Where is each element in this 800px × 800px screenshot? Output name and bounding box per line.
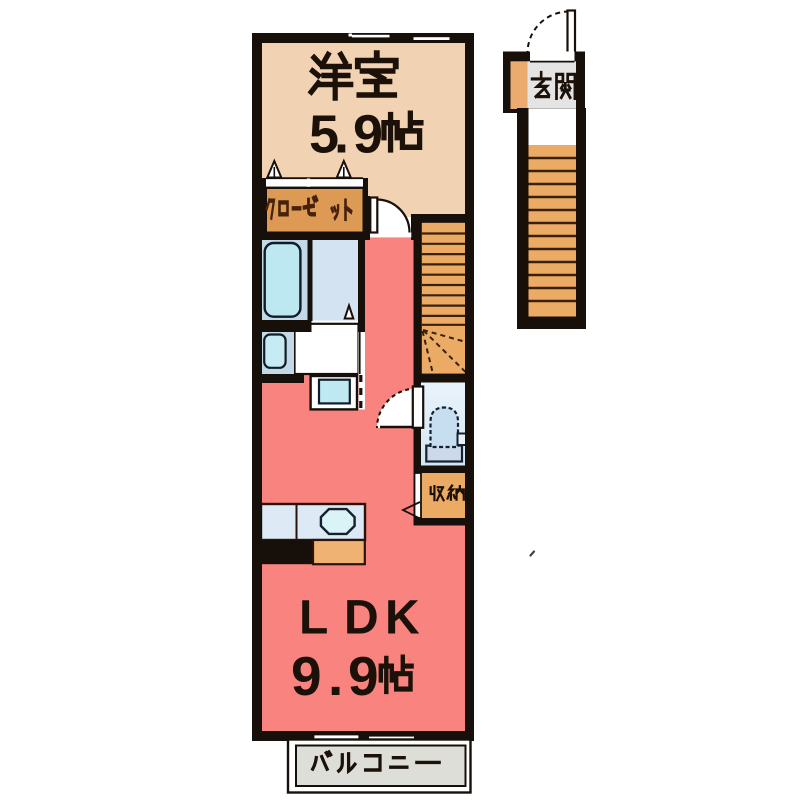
svg-text:K: K bbox=[385, 592, 420, 645]
svg-text:9: 9 bbox=[291, 645, 322, 707]
svg-text:.: . bbox=[328, 645, 343, 707]
svg-text:9: 9 bbox=[348, 645, 379, 707]
svg-text:.: . bbox=[334, 105, 349, 165]
svg-text:D: D bbox=[344, 592, 379, 645]
svg-text:L: L bbox=[299, 592, 328, 645]
svg-text:9: 9 bbox=[353, 105, 383, 165]
